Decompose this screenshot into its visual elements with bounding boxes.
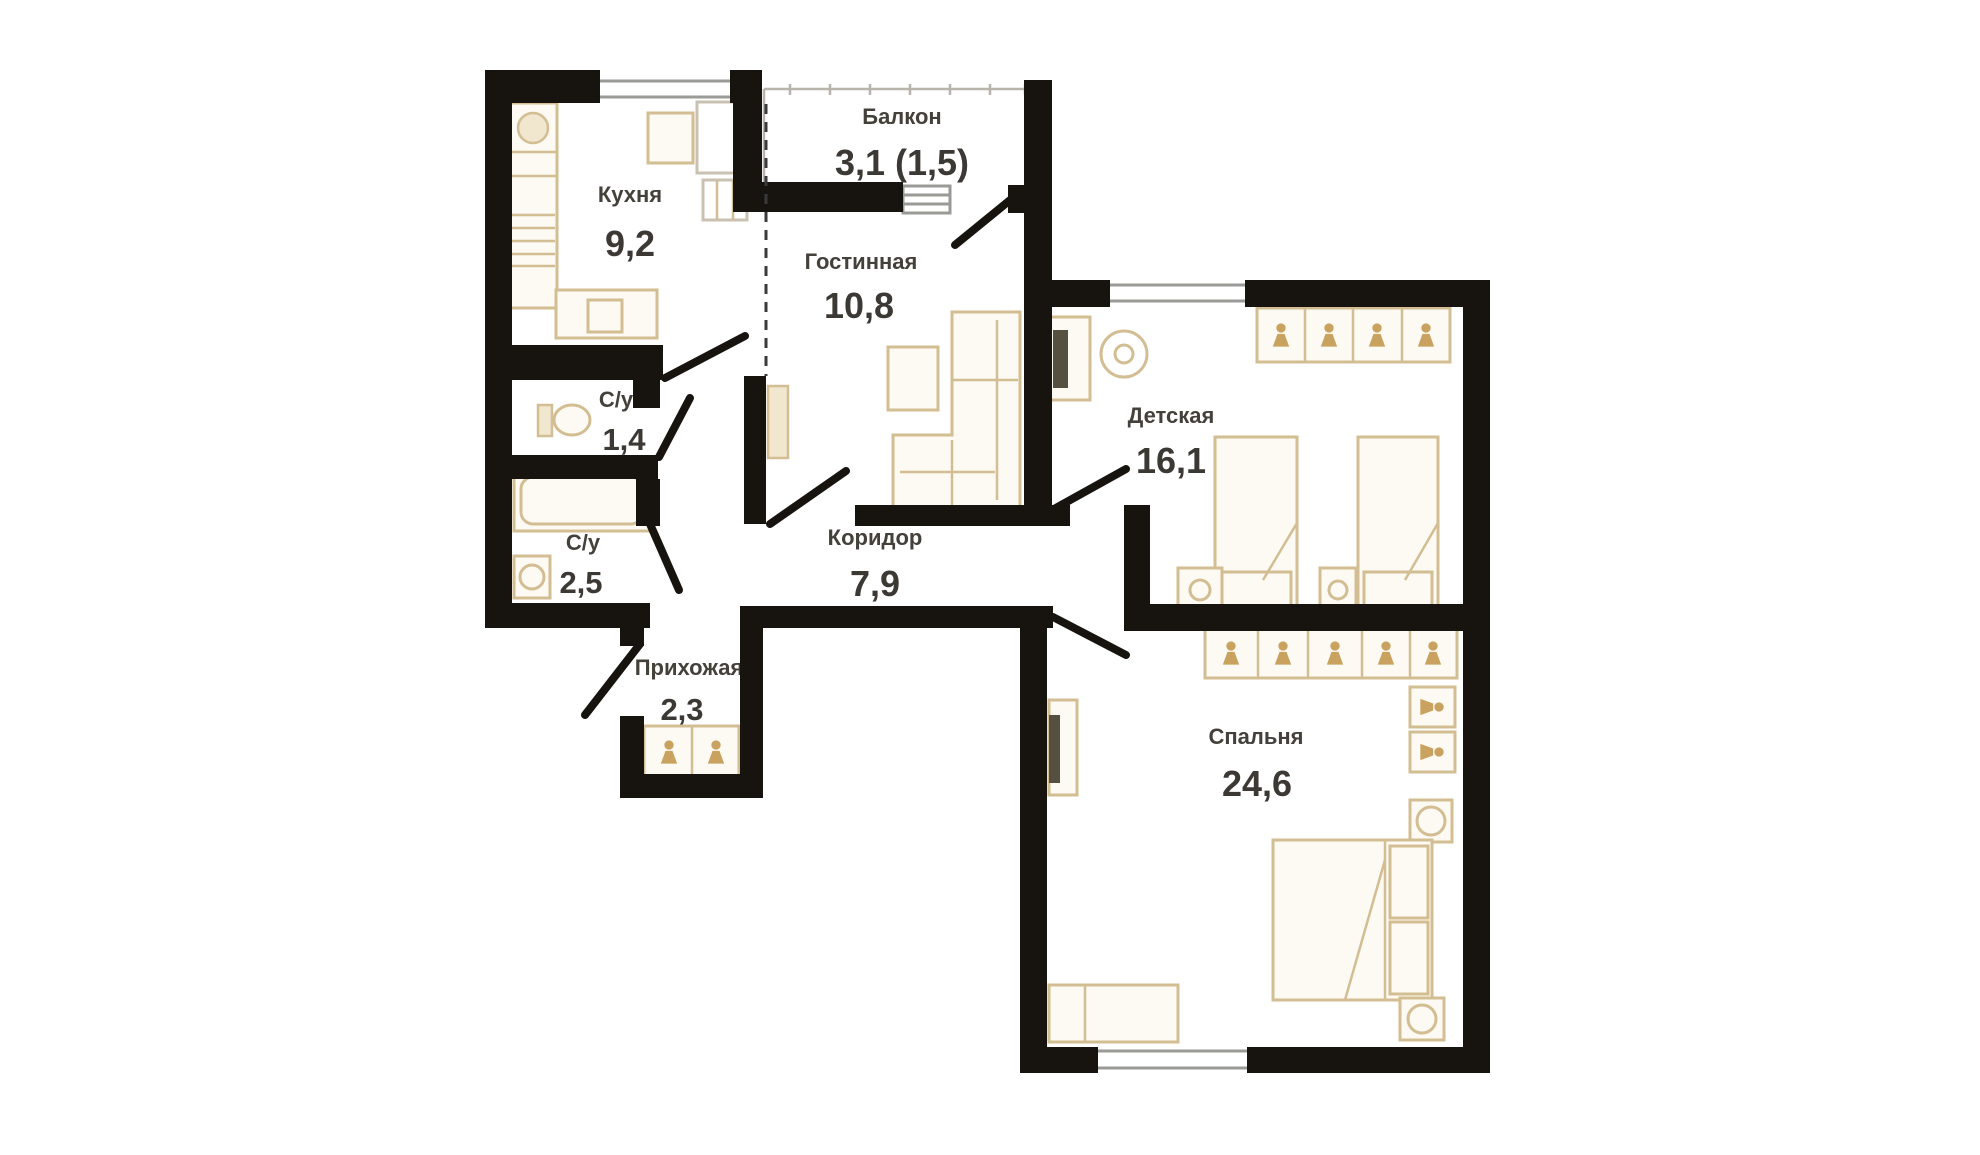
entry-hall-wardrobe <box>644 726 739 779</box>
dresser <box>1049 985 1178 1042</box>
wall-kitchen-bottom <box>485 345 663 380</box>
living-room-door <box>770 471 846 524</box>
bathroom-large-door <box>650 524 679 590</box>
bedroom-label: Спальня <box>1208 724 1303 749</box>
computer-icon <box>1053 330 1068 388</box>
wall-bath-divider <box>485 455 658 479</box>
wall-kids-west-stub <box>1124 505 1150 631</box>
bathtub-icon <box>514 470 650 531</box>
wall-bedroom-bottom-right <box>1247 1047 1490 1073</box>
wall <box>636 479 660 526</box>
kids-room-furniture <box>1049 308 1450 612</box>
kids-room-window <box>1110 285 1245 301</box>
kids-room-area: 16,1 <box>1136 440 1206 481</box>
bathroom-large-label: С/у <box>566 530 601 555</box>
floor-plan: Прихожая 2,3 <box>0 0 1980 1155</box>
living-room-label: Гостинная <box>805 249 918 274</box>
sink-icon <box>518 113 548 143</box>
kitchen-door <box>665 336 745 378</box>
wardrobe <box>1257 308 1450 362</box>
wall <box>633 380 660 408</box>
wall-bedroom-north <box>1124 604 1490 631</box>
wall-kids-top-right <box>1245 280 1467 307</box>
bathroom-small-door <box>659 398 690 457</box>
toilet-icon <box>538 405 590 436</box>
bedroom-furniture <box>1049 627 1457 1042</box>
wall-balcony-bottom <box>762 182 903 212</box>
desk <box>1049 317 1090 400</box>
coffee-table <box>888 347 938 410</box>
kitchen-label: Кухня <box>598 182 662 207</box>
entrance-door <box>585 644 640 715</box>
floor-plan-page: Прихожая 2,3 <box>0 0 1980 1155</box>
double-bed <box>1273 840 1432 1000</box>
corridor-area: 7,9 <box>850 563 900 604</box>
side-shelf <box>1410 687 1455 772</box>
kitchen-window <box>600 81 730 97</box>
living-room-area: 10,8 <box>824 285 894 326</box>
wall-bath-bottom <box>485 603 650 628</box>
tv-icon <box>1049 715 1060 783</box>
kitchen-table <box>556 290 657 338</box>
wall-kids-top-left <box>1024 280 1110 307</box>
wall-kitchen-balcony-divider <box>733 70 762 212</box>
tv-stand <box>1049 700 1077 795</box>
wall-corridor-south <box>740 606 1053 628</box>
kids-bed-2 <box>1358 437 1438 612</box>
entry-hall-labels: Прихожая 2,3 <box>635 655 744 727</box>
wall-bedroom-west <box>1020 610 1047 1073</box>
corridor-label: Коридор <box>828 525 923 550</box>
kids-room-label: Детская <box>1128 403 1215 428</box>
nightstand-lamp <box>1410 800 1452 842</box>
desk-chair <box>1101 331 1147 377</box>
kids-bed-1 <box>1215 437 1297 612</box>
wall-living-west <box>744 376 766 524</box>
balcony-door-window <box>903 186 950 213</box>
bedroom-door <box>1053 617 1126 655</box>
wardrobe <box>1205 627 1457 678</box>
nightstand-lamp <box>1400 998 1444 1040</box>
kitchen-area: 9,2 <box>605 223 655 264</box>
shelf-strip <box>768 386 788 458</box>
balcony-area: 3,1 (1,5) <box>835 142 969 183</box>
entry-hall-area: 2,3 <box>660 692 703 727</box>
bedroom-window <box>1098 1051 1247 1068</box>
fridge <box>648 113 693 163</box>
wall-bedroom-bottom-left <box>1020 1047 1098 1073</box>
bathroom-small-area: 1,4 <box>602 422 646 457</box>
washing-machine-icon <box>514 556 550 598</box>
wall-exterior-right <box>1463 280 1490 1073</box>
bathroom-large-area: 2,5 <box>559 565 602 600</box>
bedroom-area: 24,6 <box>1222 763 1292 804</box>
bathroom-small-furniture <box>538 405 590 436</box>
balcony-door <box>955 192 1020 245</box>
balcony-label: Балкон <box>862 104 941 129</box>
bathroom-small-label: С/у <box>599 387 634 412</box>
entry-hall-label: Прихожая <box>635 655 744 680</box>
kids-room-door <box>1054 469 1126 509</box>
wall-hall-right <box>740 606 763 798</box>
